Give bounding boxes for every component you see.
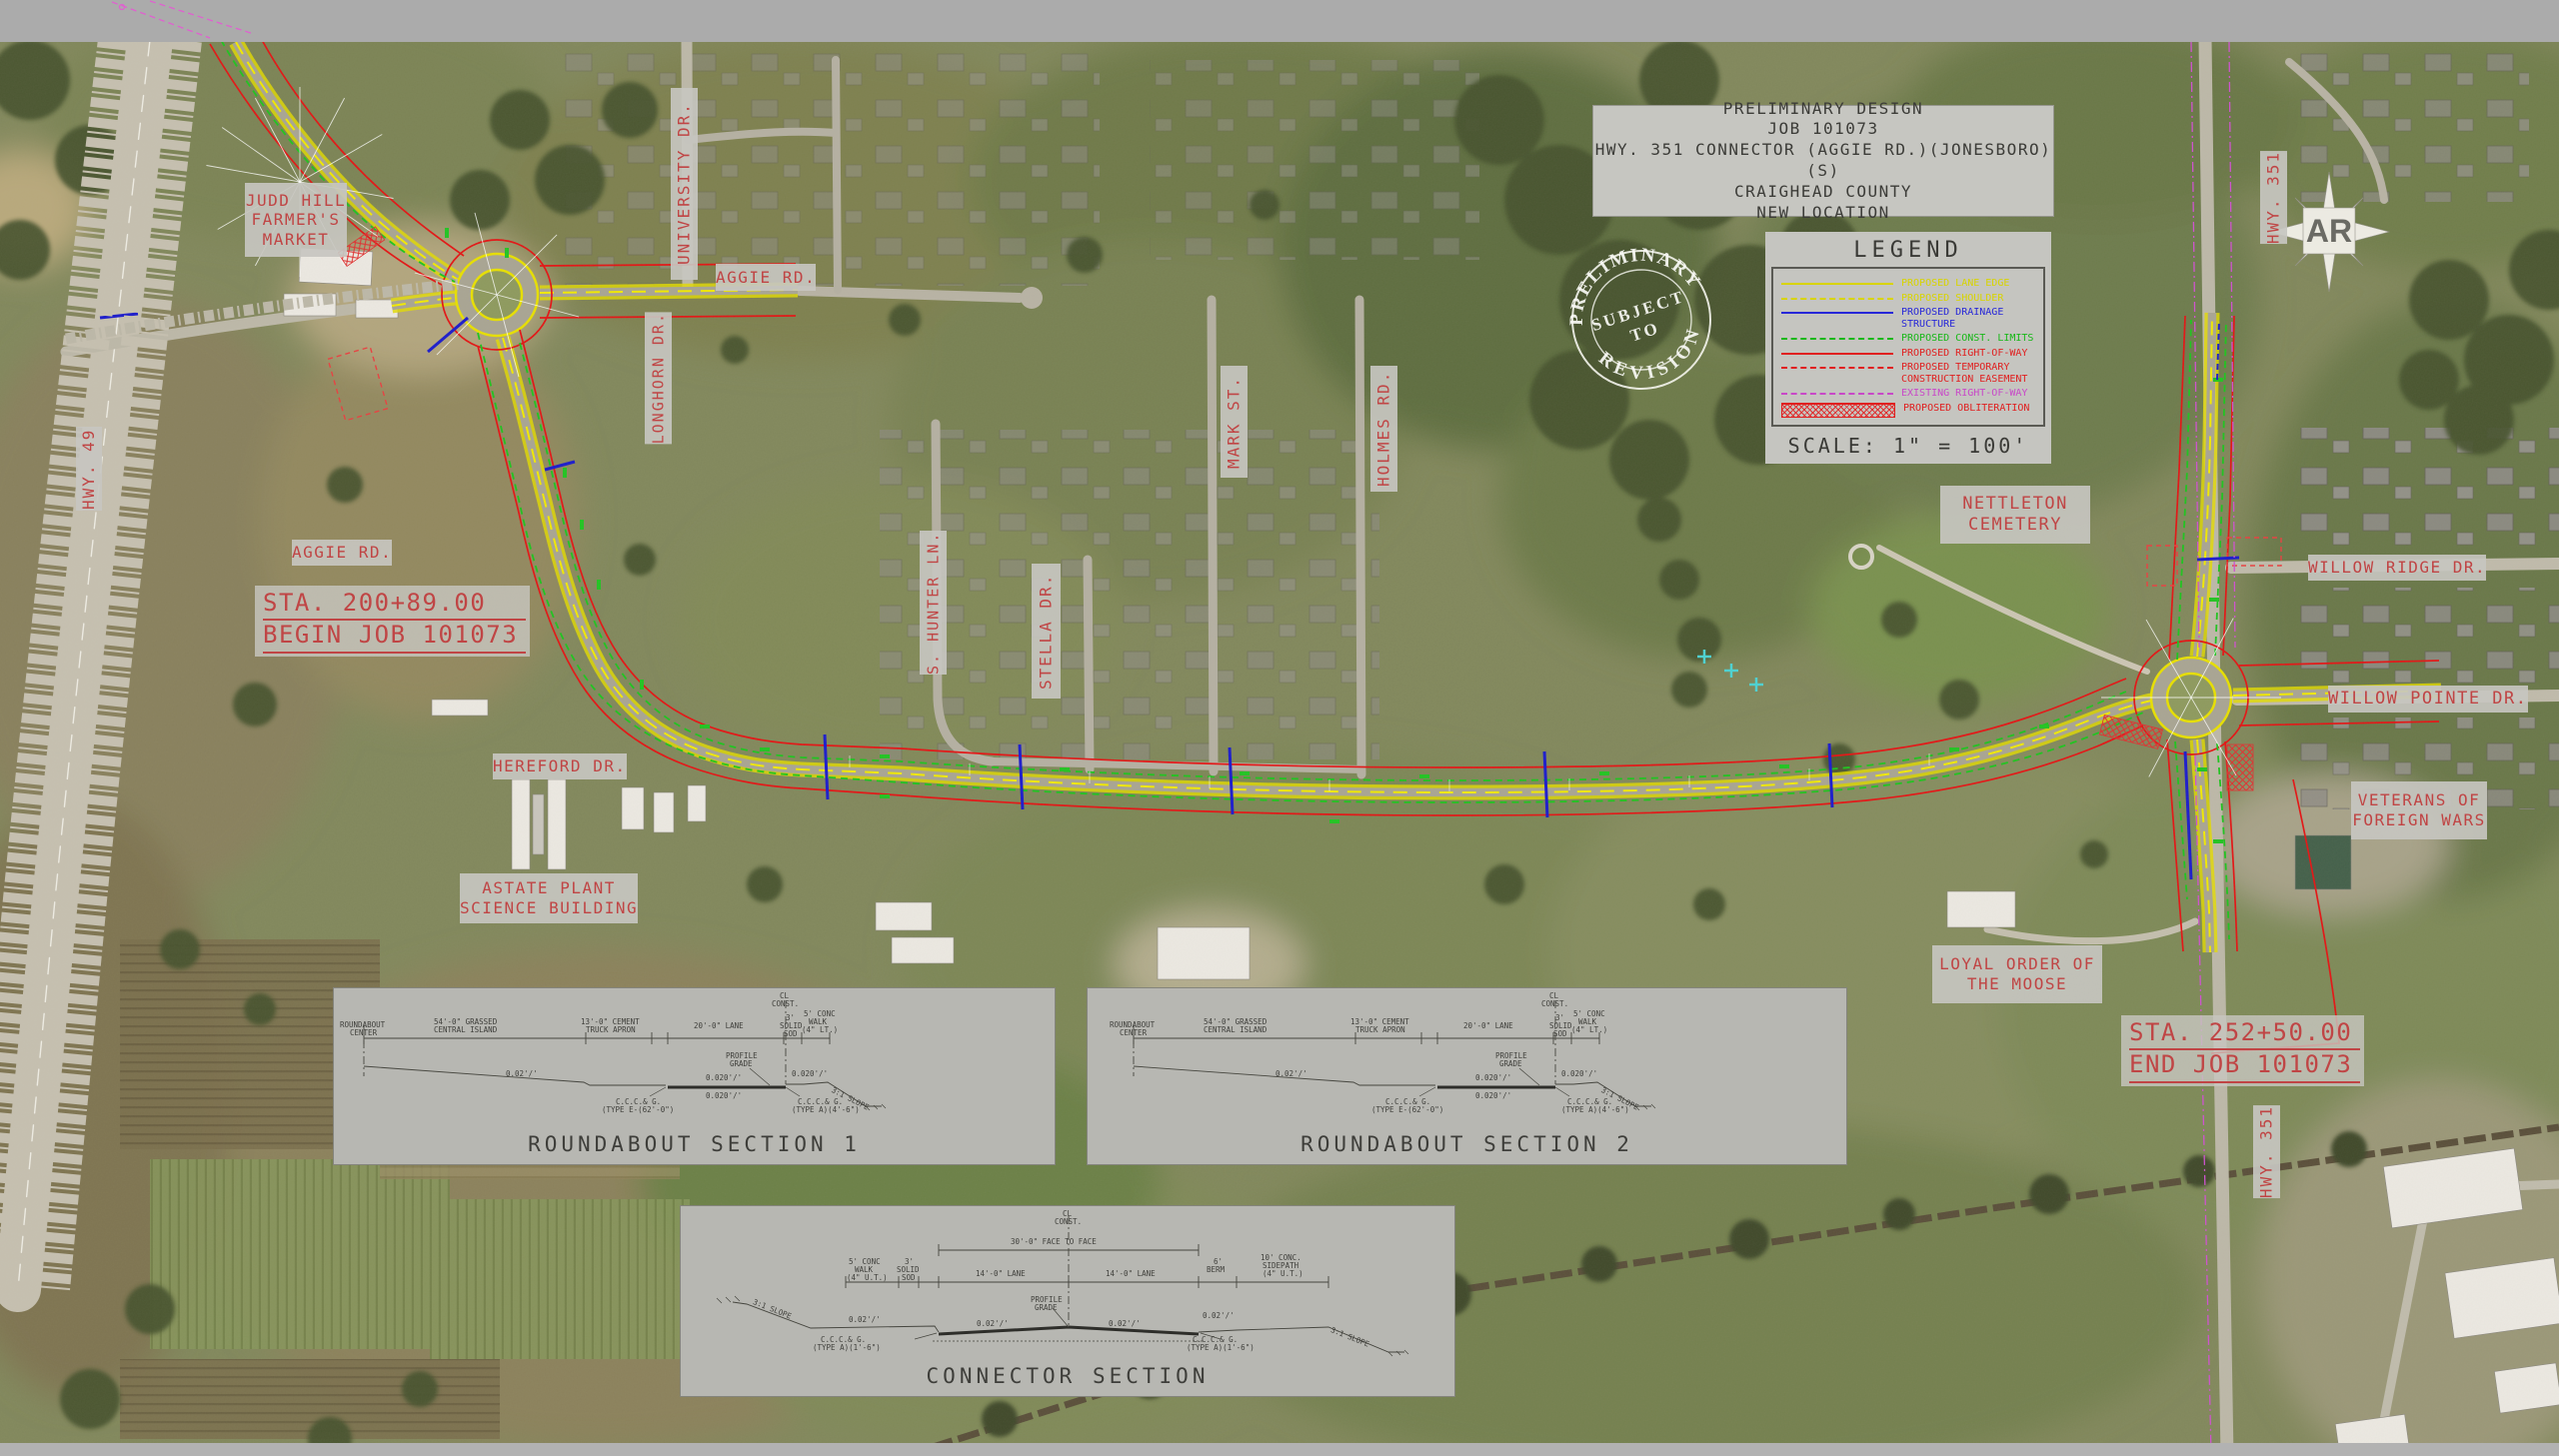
section-annotation: 0.020'/' bbox=[706, 1074, 742, 1082]
legend-sample-solid-icon bbox=[1781, 353, 1893, 355]
legend-entry-0: PROPOSED LANE EDGE bbox=[1781, 278, 2037, 290]
section-annotation: 0.020'/' bbox=[792, 1070, 828, 1078]
section-annotation: 0.020'/' bbox=[1475, 1092, 1511, 1100]
section-annotation: 0.02'/' bbox=[506, 1070, 538, 1078]
section-annotation: GRADE bbox=[730, 1060, 753, 1068]
section-annotation: 0.020'/' bbox=[706, 1092, 742, 1100]
section-annotation: BERM bbox=[1207, 1266, 1225, 1274]
section-annotation: GRADE bbox=[1035, 1304, 1058, 1312]
legend-sample-dashdot-icon bbox=[1781, 393, 1893, 395]
title-line-4: CRAIGHEAD COUNTY bbox=[1593, 182, 2053, 203]
legend-entry-label: PROPOSED TEMPORARY CONSTRUCTION EASEMENT bbox=[1901, 362, 2027, 385]
legend-sample-dashed-icon bbox=[1781, 338, 1893, 340]
section-annotation: CONST. bbox=[1541, 1000, 1568, 1008]
section-annotation: 14'-0" LANE bbox=[976, 1270, 1026, 1278]
section-annotation: 20'-0" LANE bbox=[694, 1022, 744, 1030]
section-annotation: (TYPE A)(4'-6") bbox=[1561, 1106, 1629, 1114]
section-annotation: (TYPE E-(62'-0") bbox=[602, 1106, 674, 1114]
legend-entry-label: PROPOSED SHOULDER bbox=[1901, 293, 2003, 305]
legend-sample-dashed-icon bbox=[1781, 298, 1893, 300]
section-annotation: GRADE bbox=[1499, 1060, 1522, 1068]
section-annotation: 0.02'/' bbox=[1203, 1312, 1235, 1320]
legend-entry-label: PROPOSED LANE EDGE bbox=[1901, 278, 2009, 290]
section-annotation: CENTRAL ISLAND bbox=[1204, 1026, 1267, 1034]
roundabout-section-2-title: ROUNDABOUT SECTION 2 bbox=[1088, 1132, 1846, 1156]
title-line-3: HWY. 351 CONNECTOR (AGGIE RD.)(JONESBORO… bbox=[1593, 140, 2053, 182]
section-annotation: (4" U.T.) bbox=[847, 1274, 888, 1282]
legend-entry-3: PROPOSED CONST. LIMITS bbox=[1781, 333, 2037, 345]
legend-entry-6: EXISTING RIGHT-OF-WAY bbox=[1781, 388, 2037, 400]
legend-entry-label: EXISTING RIGHT-OF-WAY bbox=[1901, 388, 2027, 400]
section-annotation: (TYPE E-(62'-0") bbox=[1371, 1106, 1443, 1114]
title-block: PRELIMINARY DESIGN JOB 101073 HWY. 351 C… bbox=[1592, 105, 2054, 217]
section-annotation: (TYPE A)(1'-6") bbox=[1187, 1344, 1255, 1352]
section-annotation: SOD bbox=[1553, 1030, 1567, 1038]
roundabout-section-1-box: ROUNDABOUTCENTER54'-0" GRASSEDCENTRAL IS… bbox=[333, 987, 1056, 1165]
roundabout-section-1-title: ROUNDABOUT SECTION 1 bbox=[334, 1132, 1055, 1156]
legend-entry-4: PROPOSED RIGHT-OF-WAY bbox=[1781, 348, 2037, 360]
section-annotation: SOD bbox=[902, 1274, 916, 1282]
title-line-1: PRELIMINARY DESIGN bbox=[1593, 99, 2053, 120]
section-annotation: (4" U.T.) bbox=[1263, 1270, 1303, 1278]
legend-entry-label: PROPOSED CONST. LIMITS bbox=[1901, 333, 2033, 345]
legend-sample-hatch-icon bbox=[1781, 403, 1895, 418]
title-line-5: NEW LOCATION bbox=[1593, 203, 2053, 224]
section-annotation: CONST. bbox=[772, 1000, 799, 1008]
ar-state-letters: AR bbox=[2306, 213, 2352, 249]
connector-section-box: CLCONST.30'-0" FACE TO FACE5' CONCWALK(4… bbox=[680, 1205, 1455, 1397]
legend-sample-dashed-icon bbox=[1781, 367, 1893, 369]
scale-label: SCALE: 1" = 100' bbox=[1771, 434, 2045, 458]
legend-panel: LEGEND PROPOSED LANE EDGEPROPOSED SHOULD… bbox=[1765, 232, 2051, 464]
section-annotation: (4" LT.) bbox=[1571, 1026, 1607, 1034]
legend-entry-5: PROPOSED TEMPORARY CONSTRUCTION EASEMENT bbox=[1781, 362, 2037, 385]
section-annotation: (TYPE A)(4'-6") bbox=[792, 1106, 860, 1114]
legend-entry-label: PROPOSED RIGHT-OF-WAY bbox=[1901, 348, 2027, 360]
section-annotation: CONST. bbox=[1055, 1218, 1082, 1226]
plan-sheet: AR PRELIMINARY REVISION SUBJECT TO PRELI… bbox=[0, 0, 2559, 1456]
section-annotation: 0.02'/' bbox=[977, 1320, 1009, 1328]
legend-sample-solid-icon bbox=[1781, 312, 1893, 314]
legend-entry-label: PROPOSED DRAINAGE STRUCTURE bbox=[1901, 307, 2037, 330]
section-annotation: 30'-0" FACE TO FACE bbox=[1011, 1238, 1097, 1246]
section-annotation: 0.02'/' bbox=[1109, 1320, 1141, 1328]
section-annotation: CENTER bbox=[350, 1029, 377, 1037]
title-line-2: JOB 101073 bbox=[1593, 119, 2053, 140]
legend-entry-1: PROPOSED SHOULDER bbox=[1781, 293, 2037, 305]
section-annotation: 0.020'/' bbox=[1561, 1070, 1597, 1078]
legend-entry-7: PROPOSED OBLITERATION bbox=[1781, 403, 2037, 418]
section-annotation: CENTRAL ISLAND bbox=[434, 1026, 497, 1034]
sheet-bottom-margin bbox=[0, 1443, 2559, 1456]
legend-sample-solid-icon bbox=[1781, 283, 1893, 285]
section-annotation: TRUCK APRON bbox=[586, 1026, 636, 1034]
legend-entry-label: PROPOSED OBLITERATION bbox=[1903, 403, 2029, 415]
section-annotation: 0.02'/' bbox=[1276, 1070, 1307, 1078]
section-annotation: SOD bbox=[784, 1030, 798, 1038]
section-annotation: 0.020'/' bbox=[1475, 1074, 1511, 1082]
section-annotation: TRUCK APRON bbox=[1355, 1026, 1405, 1034]
section-annotation: (TYPE A)(1'-6") bbox=[813, 1344, 881, 1352]
sheet-top-margin bbox=[0, 0, 2559, 42]
connector-section-title: CONNECTOR SECTION bbox=[681, 1364, 1454, 1388]
section-annotation: CENTER bbox=[1120, 1029, 1147, 1037]
section-annotation: (4" LT.) bbox=[802, 1026, 838, 1034]
section-annotation: 14'-0" LANE bbox=[1106, 1270, 1156, 1278]
legend-entry-2: PROPOSED DRAINAGE STRUCTURE bbox=[1781, 307, 2037, 330]
roundabout-section-2-box: ROUNDABOUTCENTER54'-0" GRASSEDCENTRAL IS… bbox=[1087, 987, 1847, 1165]
legend-title: LEGEND bbox=[1771, 238, 2045, 263]
section-annotation: 0.02'/' bbox=[849, 1316, 881, 1324]
legend-entries: PROPOSED LANE EDGEPROPOSED SHOULDERPROPO… bbox=[1771, 267, 2045, 427]
section-annotation: 20'-0" LANE bbox=[1463, 1022, 1513, 1030]
